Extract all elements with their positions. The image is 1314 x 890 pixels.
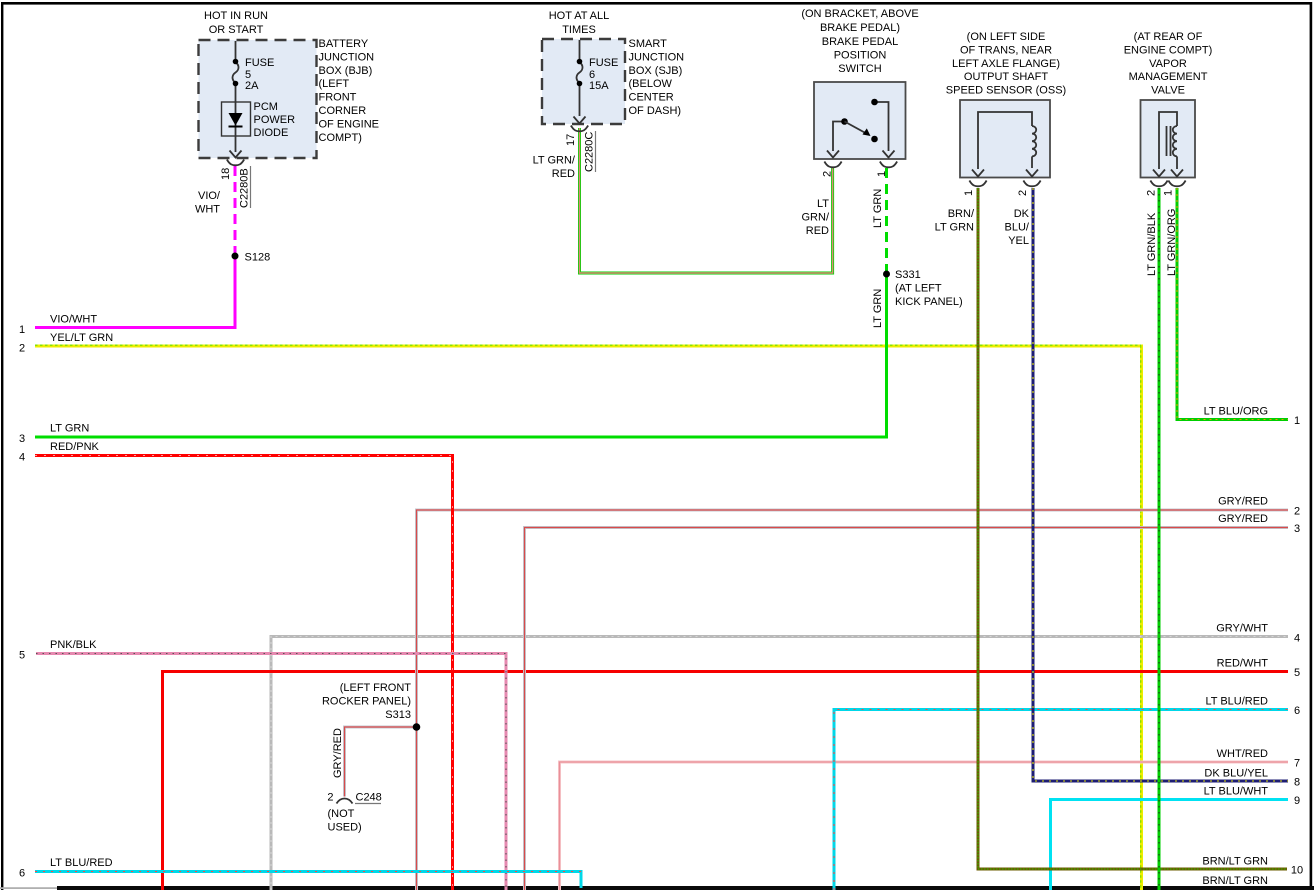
svg-text:USED): USED) <box>328 822 362 834</box>
svg-text:MANAGEMENT: MANAGEMENT <box>1129 71 1208 83</box>
svg-text:2: 2 <box>822 171 834 177</box>
svg-text:OUTPUT SHAFT: OUTPUT SHAFT <box>964 71 1048 83</box>
svg-text:2: 2 <box>1017 190 1029 196</box>
svg-text:YEL/LT GRN: YEL/LT GRN <box>50 332 113 344</box>
svg-text:2: 2 <box>327 792 333 804</box>
svg-text:8: 8 <box>1294 777 1300 789</box>
svg-text:HOT IN RUN: HOT IN RUN <box>204 10 268 22</box>
svg-text:1: 1 <box>19 324 25 336</box>
svg-text:PNK/BLK: PNK/BLK <box>50 639 97 651</box>
svg-text:C2280C: C2280C <box>584 132 596 172</box>
svg-text:BRN/: BRN/ <box>948 208 975 220</box>
svg-text:DIODE: DIODE <box>254 127 289 139</box>
svg-text:4: 4 <box>1294 633 1300 645</box>
svg-text:(BELOW: (BELOW <box>629 78 673 90</box>
svg-text:BRN/LT GRN: BRN/LT GRN <box>1202 875 1268 887</box>
svg-text:LT GRN/ORG: LT GRN/ORG <box>1166 209 1178 276</box>
svg-text:1: 1 <box>963 190 975 196</box>
svg-text:POWER: POWER <box>254 114 296 126</box>
svg-text:10: 10 <box>1291 865 1303 877</box>
svg-text:LT BLU/WHT: LT BLU/WHT <box>1204 786 1269 798</box>
svg-text:7: 7 <box>1294 758 1300 770</box>
svg-text:18: 18 <box>220 168 232 180</box>
svg-text:LT GRN/BLK: LT GRN/BLK <box>1146 212 1158 276</box>
svg-text:LT BLU/ORG: LT BLU/ORG <box>1204 406 1268 418</box>
svg-text:5: 5 <box>1294 667 1300 679</box>
svg-text:17: 17 <box>565 134 577 146</box>
svg-text:VAPOR: VAPOR <box>1149 58 1187 70</box>
svg-text:(AT LEFT: (AT LEFT <box>895 283 942 295</box>
svg-text:(NOT: (NOT <box>328 808 355 820</box>
svg-text:PCM: PCM <box>254 101 278 113</box>
svg-text:GRY/RED: GRY/RED <box>332 728 344 778</box>
svg-text:GRY/WHT: GRY/WHT <box>1216 623 1268 635</box>
svg-text:BRAKE PEDAL): BRAKE PEDAL) <box>820 22 900 34</box>
svg-text:SPEED SENSOR (OSS): SPEED SENSOR (OSS) <box>946 85 1066 97</box>
svg-text:LT GRN: LT GRN <box>935 222 974 234</box>
svg-text:LT GRN/: LT GRN/ <box>533 155 576 167</box>
svg-text:DK: DK <box>1014 208 1030 220</box>
svg-text:GRN/: GRN/ <box>802 212 830 224</box>
svg-text:9: 9 <box>1294 795 1300 807</box>
svg-text:3: 3 <box>19 433 25 445</box>
svg-text:WHT/RED: WHT/RED <box>1217 748 1268 760</box>
svg-text:6: 6 <box>19 868 25 880</box>
svg-text:1: 1 <box>1163 190 1175 196</box>
svg-text:2A: 2A <box>245 80 259 92</box>
svg-text:(LEFT FRONT: (LEFT FRONT <box>340 682 412 694</box>
svg-text:2: 2 <box>1146 190 1158 196</box>
svg-text:LT: LT <box>817 198 829 210</box>
svg-text:LT BLU/RED: LT BLU/RED <box>50 857 113 869</box>
svg-text:LT GRN: LT GRN <box>872 289 884 328</box>
svg-text:SMART: SMART <box>629 38 668 50</box>
svg-text:TIMES: TIMES <box>562 24 596 36</box>
svg-text:6: 6 <box>1294 705 1300 717</box>
svg-text:GRY/RED: GRY/RED <box>1218 513 1268 525</box>
svg-text:OF ENGINE: OF ENGINE <box>319 118 380 130</box>
svg-text:1: 1 <box>876 171 888 177</box>
svg-text:RED/WHT: RED/WHT <box>1217 658 1269 670</box>
svg-text:POSITION: POSITION <box>834 50 887 62</box>
svg-text:SWITCH: SWITCH <box>838 63 881 75</box>
svg-text:(ON LEFT SIDE: (ON LEFT SIDE <box>967 31 1046 43</box>
svg-text:S128: S128 <box>245 252 271 264</box>
svg-text:LT GRN: LT GRN <box>50 423 89 435</box>
svg-text:5: 5 <box>19 650 25 662</box>
svg-text:CENTER: CENTER <box>629 92 674 104</box>
svg-text:JUNCTION: JUNCTION <box>629 51 685 63</box>
svg-text:BRN/LT GRN: BRN/LT GRN <box>1202 856 1268 868</box>
svg-text:BLU/: BLU/ <box>1005 222 1030 234</box>
svg-text:2: 2 <box>1294 506 1300 518</box>
svg-text:OF TRANS, NEAR: OF TRANS, NEAR <box>960 44 1052 56</box>
svg-text:S331: S331 <box>895 269 921 281</box>
svg-text:RED: RED <box>552 168 575 180</box>
svg-text:FUSE: FUSE <box>589 57 618 69</box>
svg-text:VIO/: VIO/ <box>198 190 221 202</box>
svg-text:4: 4 <box>19 452 25 464</box>
svg-text:CORNER: CORNER <box>319 105 367 117</box>
svg-text:VALVE: VALVE <box>1151 85 1185 97</box>
svg-text:LEFT AXLE FLANGE): LEFT AXLE FLANGE) <box>952 58 1060 70</box>
svg-text:(AT REAR OF: (AT REAR OF <box>1134 31 1203 43</box>
svg-text:YEL: YEL <box>1008 235 1029 247</box>
svg-text:1: 1 <box>1294 415 1300 427</box>
svg-text:VIO/WHT: VIO/WHT <box>50 314 97 326</box>
svg-text:C2280B: C2280B <box>239 168 251 208</box>
svg-text:BRAKE PEDAL: BRAKE PEDAL <box>822 36 898 48</box>
svg-text:BOX (SJB): BOX (SJB) <box>629 65 683 77</box>
svg-text:BATTERY: BATTERY <box>319 38 369 50</box>
svg-text:ENGINE COMPT): ENGINE COMPT) <box>1124 44 1213 56</box>
svg-text:C248: C248 <box>356 792 382 804</box>
svg-text:FUSE: FUSE <box>245 57 274 69</box>
svg-text:(LEFT: (LEFT <box>319 78 350 90</box>
svg-text:15A: 15A <box>589 80 609 92</box>
svg-text:JUNCTION: JUNCTION <box>319 51 375 63</box>
svg-text:S313: S313 <box>385 709 411 721</box>
svg-text:OR START: OR START <box>209 24 264 36</box>
svg-text:BOX (BJB): BOX (BJB) <box>319 65 373 77</box>
svg-text:GRY/RED: GRY/RED <box>1218 496 1268 508</box>
svg-text:3: 3 <box>1294 523 1300 535</box>
svg-text:WHT: WHT <box>195 204 220 216</box>
svg-text:RED: RED <box>806 225 829 237</box>
svg-text:(ON BRACKET, ABOVE: (ON BRACKET, ABOVE <box>801 8 918 20</box>
svg-text:DK BLU/YEL: DK BLU/YEL <box>1204 768 1268 780</box>
svg-text:ROCKER PANEL): ROCKER PANEL) <box>322 696 411 708</box>
svg-text:2: 2 <box>19 343 25 355</box>
svg-text:COMPT): COMPT) <box>319 132 362 144</box>
svg-text:FRONT: FRONT <box>319 92 357 104</box>
svg-text:LT GRN: LT GRN <box>872 189 884 228</box>
svg-text:KICK PANEL): KICK PANEL) <box>895 296 963 308</box>
svg-text:RED/PNK: RED/PNK <box>50 441 100 453</box>
svg-text:OF DASH): OF DASH) <box>629 105 682 117</box>
svg-text:HOT AT ALL: HOT AT ALL <box>549 10 610 22</box>
svg-text:LT BLU/RED: LT BLU/RED <box>1205 696 1268 708</box>
